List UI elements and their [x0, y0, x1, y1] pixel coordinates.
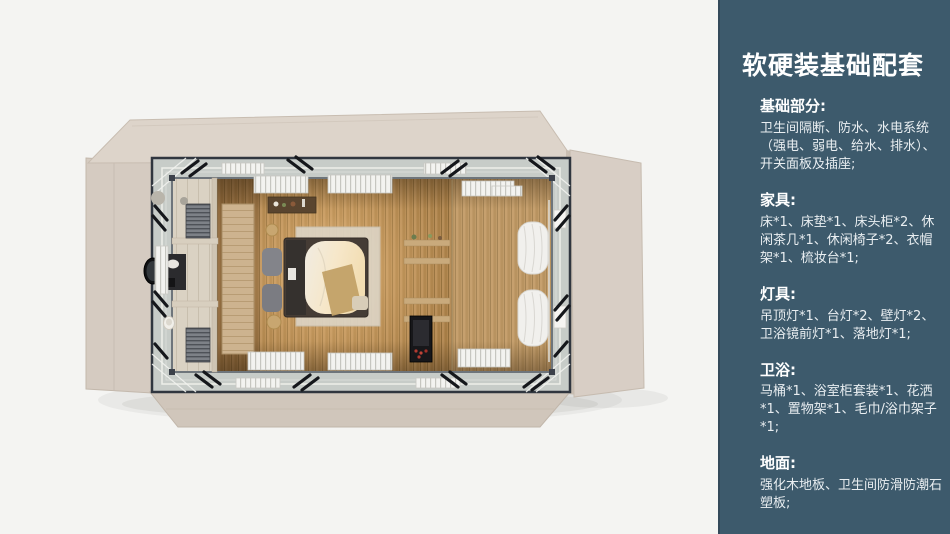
plant: [428, 234, 432, 238]
basket: [266, 224, 278, 236]
section-lighting-body: 吊顶灯*1、台灯*2、壁灯*2、卫浴镜前灯*1、落地灯*1;: [760, 308, 942, 344]
section-lighting-heading: 灯具:: [760, 285, 942, 304]
info-panel: 软硬装基础配套 基础部分: 卫生间隔断、防水、水电系统（强电、弱电、给水、排水）…: [718, 0, 950, 534]
plant: [412, 235, 417, 240]
bed-lamp: [288, 268, 296, 280]
section-furniture-heading: 家具:: [760, 191, 942, 210]
wardrobe: [222, 204, 254, 354]
section-bathroom-heading: 卫浴:: [760, 361, 942, 380]
floorplan-render: [0, 0, 718, 534]
section-furniture-body: 床*1、床垫*1、床头柜*2、休闲茶几*1、休闲椅子*2、衣帽架*1、梳妆台*1…: [760, 214, 942, 268]
towel-rack: [186, 328, 210, 362]
section-basics-body: 卫生间隔断、防水、水电系统（强电、弱电、给水、排水）、开关面板及插座;: [760, 120, 942, 174]
section-bathroom-body: 马桶*1、浴室柜套装*1、花洒*1、置物架*1、毛巾/浴巾架子*1;: [760, 383, 942, 437]
top-flap: [88, 111, 575, 163]
sink: [167, 260, 179, 269]
nightstand: [262, 284, 282, 312]
section-list: 基础部分: 卫生间隔断、防水、水电系统（强电、弱电、给水、排水）、开关面板及插座…: [760, 97, 938, 513]
section-basics: 基础部分: 卫生间隔断、防水、水电系统（强电、弱电、给水、排水）、开关面板及插座…: [760, 97, 942, 174]
nightstand: [262, 248, 282, 276]
render-area: [0, 0, 718, 534]
section-flooring: 地面: 强化木地板、卫生间防滑防潮石塑板;: [760, 454, 942, 513]
towel-rack: [186, 204, 210, 238]
shower-head: [151, 191, 165, 205]
partition-wall: [172, 301, 218, 307]
right-flap: [570, 150, 644, 397]
cushion: [352, 296, 368, 310]
left-flap: [86, 158, 152, 393]
section-bathroom: 卫浴: 马桶*1、浴室柜套装*1、花洒*1、置物架*1、毛巾/浴巾架子*1;: [760, 361, 942, 438]
basket: [267, 315, 281, 329]
section-furniture: 家具: 床*1、床垫*1、床头柜*2、休闲茶几*1、休闲椅子*2、衣帽架*1、梳…: [760, 191, 942, 268]
section-flooring-body: 强化木地板、卫生间防滑防潮石塑板;: [760, 477, 942, 513]
section-basics-heading: 基础部分:: [760, 97, 942, 116]
minibar-cabinet: [410, 316, 432, 362]
floor-drain: [180, 197, 188, 205]
section-lighting: 灯具: 吊顶灯*1、台灯*2、壁灯*2、卫浴镜前灯*1、落地灯*1;: [760, 285, 942, 344]
panel-title: 软硬装基础配套: [742, 50, 938, 81]
partition-wall: [172, 238, 218, 244]
section-flooring-heading: 地面:: [760, 454, 942, 473]
